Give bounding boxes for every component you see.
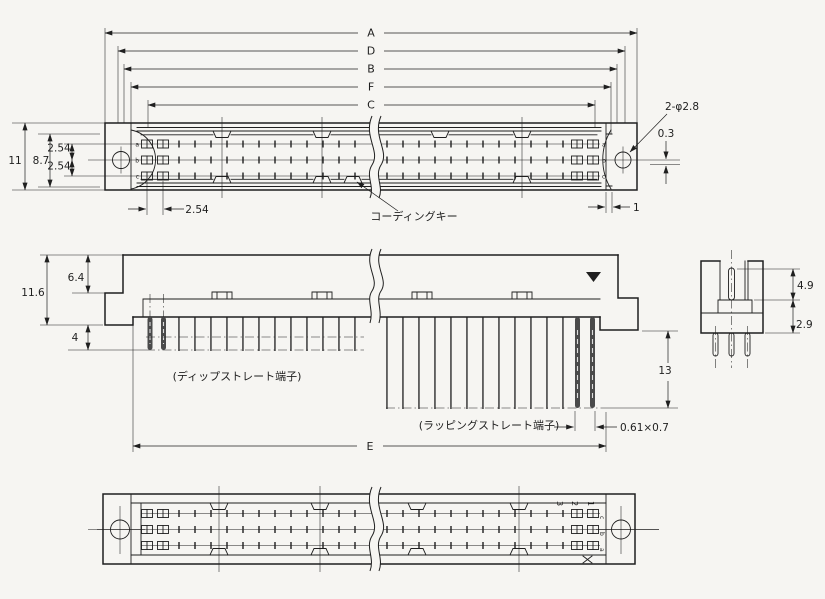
col-label-1: 1: [586, 501, 595, 506]
keying-cross-mark: [583, 556, 592, 563]
connector-dimension-drawing: a b c a b c A D B F: [0, 0, 825, 599]
dim-label-F: F: [368, 81, 374, 94]
col-label-3: 3: [555, 501, 564, 506]
row-label-a: a: [598, 548, 605, 552]
dim-end-gap: 1: [633, 202, 640, 214]
dim-label-B: B: [367, 63, 375, 76]
dim-total-height: 11.6: [21, 287, 45, 299]
col-label-2: 2: [570, 501, 579, 506]
side-view-body: [701, 250, 763, 368]
dim-mounting-holes: 2-φ2.8: [665, 101, 699, 113]
front-view-break-mark: [370, 249, 384, 323]
dim-lower-height: 2.9: [796, 319, 813, 331]
dim-label-A: A: [367, 27, 375, 40]
dim-dip-length: 4: [72, 332, 79, 344]
row-label-a: a: [135, 142, 139, 149]
dim-row-pitch-lower: 2.54: [47, 161, 71, 173]
row-label-b: b: [135, 158, 139, 165]
bottom-view: 3 2 1 c b a: [88, 486, 659, 572]
polarity-triangle-icon: [586, 272, 601, 282]
dim-wrap-length: 13: [658, 365, 671, 377]
row-label-c: c: [598, 516, 605, 519]
dim-label-D: D: [367, 45, 375, 58]
row-label-a-right: a: [602, 142, 606, 149]
top-view-break-mark: [369, 116, 383, 198]
coding-key-label: コーディングキー: [370, 209, 457, 223]
dip-terminal-pin: [148, 317, 153, 350]
row-label-b-right: b: [602, 158, 606, 165]
dip-terminal-label: (ディップストレート端子): [173, 369, 302, 383]
dim-label-E: E: [367, 440, 374, 453]
dim-upper-depth: 4.9: [797, 280, 814, 292]
side-view: 4.9 2.9: [701, 250, 814, 368]
row-label-b: b: [598, 532, 605, 536]
dim-col-pitch: 2.54: [185, 204, 209, 216]
dim-label-C: C: [367, 99, 375, 112]
row-label-c: c: [136, 174, 139, 181]
technical-drawing-page: a b c a b c A D B F: [0, 0, 825, 599]
dim-row-pitch-upper: 2.54: [47, 143, 71, 155]
top-view: a b c a b c A D B F: [8, 27, 699, 224]
row-label-c-right: c: [602, 174, 605, 181]
wrap-terminal-label: (ラッピングストレート端子): [419, 418, 560, 432]
dim-shroud-height: 6.4: [68, 272, 85, 284]
front-view: 11.6 6.4 4 13 0.61×0.7 E (ディップストレート端子) (…: [21, 249, 678, 453]
bottom-view-break-mark: [369, 487, 383, 571]
dim-hole-offset: 0.3: [658, 128, 675, 140]
top-view-dimensions: A D B F C 11 8.7 2.54 2.54 2.54: [8, 27, 699, 224]
side-view-dimensions: 4.9 2.9: [737, 269, 814, 333]
dim-overall-height: 11: [8, 155, 21, 167]
dim-pin-section: 0.61×0.7: [620, 422, 669, 434]
dip-terminal-pin: [161, 317, 166, 350]
coding-key-tab: [344, 177, 362, 184]
